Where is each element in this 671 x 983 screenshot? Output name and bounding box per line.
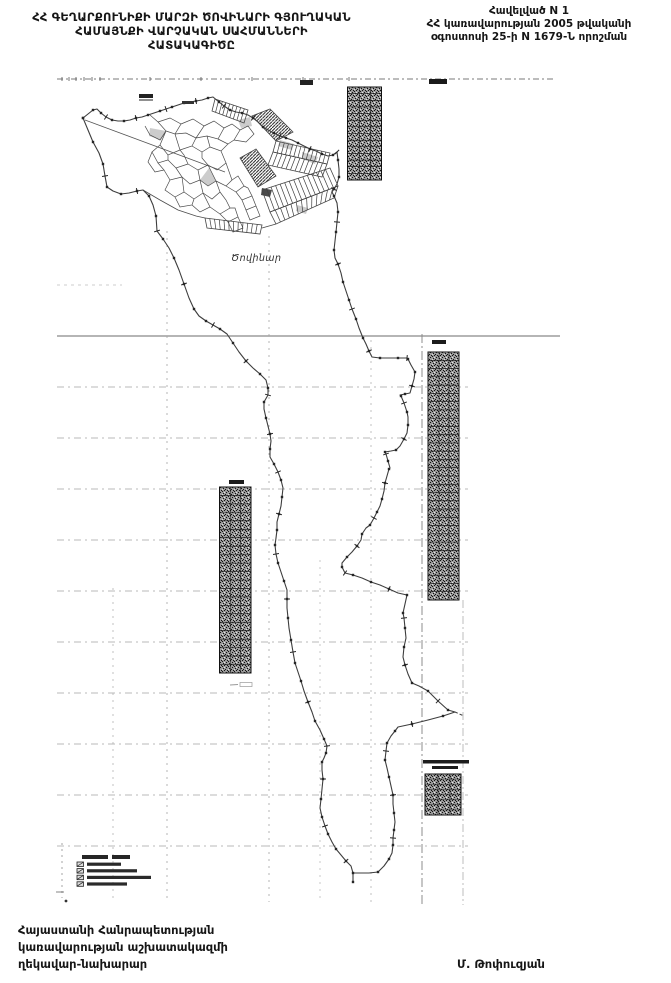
strip-fields (205, 99, 338, 234)
coordinate-table-A (348, 87, 382, 180)
coordinate-table-B (428, 352, 459, 600)
map-drawing (56, 77, 560, 906)
map-legend (77, 855, 151, 886)
coordinate-table-C (220, 487, 252, 673)
coordinate-grid (56, 77, 560, 906)
footer-line-1: Հայաստանի Հանրապետության (18, 922, 228, 939)
legend-item (77, 875, 151, 880)
legend-item (77, 862, 121, 867)
legend-item (77, 869, 137, 874)
legend-item (77, 882, 127, 887)
survey-point-markers (82, 97, 449, 883)
map-sheet: ՀՀ ԳԵՂԱՐՔՈՒՆԻՔԻ ՄԱՐԶԻ ԾՈՎԻՆԱՐԻ ԳՅՈՒՂԱԿԱՆ… (0, 0, 671, 983)
signature-name: Մ. Թոփուզյան (457, 957, 545, 971)
cadastral-map: Ծովինար (0, 0, 671, 983)
footer-line-3: ղեկավար-նախարար (18, 956, 228, 973)
settlement-label: Ծովինար (231, 253, 281, 264)
footer-signatory-block: Հայաստանի Հանրապետության կառավարության ա… (18, 922, 228, 973)
footer-line-2: կառավարության աշխատակազմի (18, 939, 228, 956)
coordinate-table-D (425, 774, 461, 815)
